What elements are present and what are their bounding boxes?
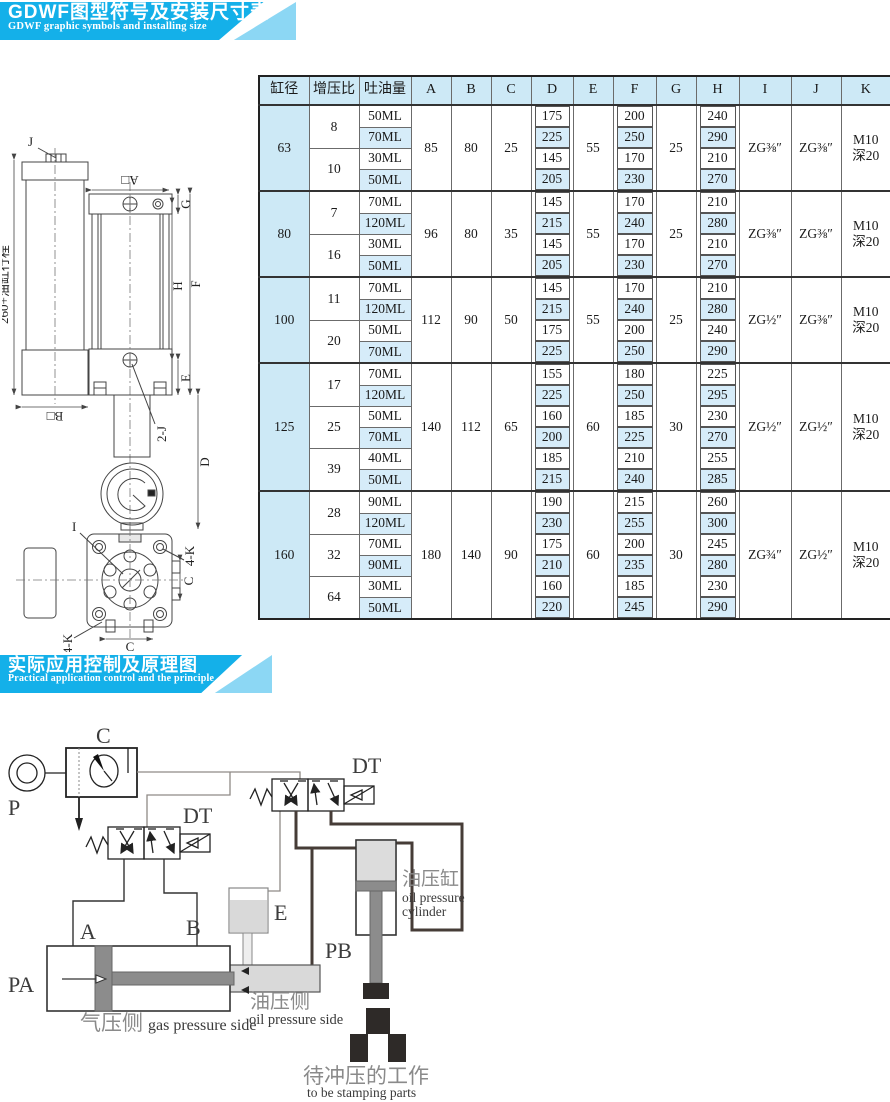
oil-volume-cell: 50ML (359, 255, 411, 277)
neck-and-gauge (101, 395, 163, 530)
dim-d-cell: 160 (531, 576, 573, 597)
c-label: C (96, 723, 111, 748)
dim-d-cell: 215 (531, 299, 573, 320)
ratio-cell: 10 (309, 148, 359, 191)
dim-a-cell: 96 (411, 191, 451, 277)
col-header: I (739, 76, 791, 105)
dt1-label: DT (183, 803, 213, 828)
oil-cylinder-cn-label: 油压缸 (402, 868, 459, 890)
catalog-page: GDWF图型符号及安装尺寸表 GDWF graphic symbols and … (0, 0, 890, 1102)
dt2-label: DT (352, 753, 382, 778)
dim-d-cell: 225 (531, 127, 573, 148)
oil-volume-cell: 120ML (359, 513, 411, 534)
dim-f-cell: 185 (613, 406, 656, 427)
four-k-top-label: 4-K (182, 545, 197, 566)
dim-h-cell: 210 (696, 234, 739, 255)
dim-f-cell: 240 (613, 299, 656, 320)
c-side-label: C (181, 577, 196, 586)
col-header: J (791, 76, 841, 105)
f-dim-label: F (188, 280, 203, 287)
oil-volume-cell: 70ML (359, 534, 411, 555)
installation-drawing: 260+油缸行程 J B□ A□ G (2, 62, 256, 652)
oil-volume-cell: 50ML (359, 406, 411, 427)
col-header: H (696, 76, 739, 105)
dim-d-cell: 215 (531, 213, 573, 234)
e-dim-label: E (178, 374, 193, 382)
dim-f-cell: 230 (613, 169, 656, 191)
dim-g-cell: 30 (656, 491, 696, 619)
dim-f-cell: 250 (613, 341, 656, 363)
dim-f-cell: 250 (613, 385, 656, 406)
dim-h-cell: 210 (696, 191, 739, 213)
air-line-tank (268, 811, 280, 891)
port-j-cell: ZG⅜″ (791, 277, 841, 363)
dim-h-cell: 270 (696, 169, 739, 191)
oil-volume-cell: 90ML (359, 555, 411, 576)
dim-d-cell: 175 (531, 105, 573, 127)
oil-volume-cell: 50ML (359, 597, 411, 619)
col-header: F (613, 76, 656, 105)
dim-f-cell: 240 (613, 469, 656, 491)
dim-a-cell: 85 (411, 105, 451, 191)
bore-cell: 100 (259, 277, 309, 363)
pb-label: PB (325, 938, 352, 963)
col-header: 缸径 (259, 76, 309, 105)
dim-h-cell: 230 (696, 576, 739, 597)
application-circuit-diagram: P C DT DT A B (0, 705, 480, 1102)
b-label: B (186, 915, 201, 940)
port-i-cell: ZG⅜″ (739, 105, 791, 191)
ratio-cell: 64 (309, 576, 359, 619)
oil-side-en-label: oil pressure side (249, 1012, 343, 1028)
port-i-cell: ZG½″ (739, 363, 791, 491)
col-header: G (656, 76, 696, 105)
dim-d-cell: 145 (531, 234, 573, 255)
table-row: 63 8 50ML 85 80 25 175 55 200 25 240 ZG⅜… (259, 105, 890, 127)
i-leader (80, 533, 123, 574)
oil-volume-cell: 120ML (359, 385, 411, 406)
two-j-leader (132, 364, 155, 424)
dim-d-cell: 175 (531, 534, 573, 555)
dim-d-cell: 155 (531, 363, 573, 385)
flange-view (24, 534, 180, 632)
dim-f-cell: 170 (613, 148, 656, 169)
dim-g-cell: 30 (656, 363, 696, 491)
port-i-cell: ZG½″ (739, 277, 791, 363)
col-header: A (411, 76, 451, 105)
oil-volume-cell: 70ML (359, 277, 411, 299)
oil-side-block (220, 965, 320, 994)
oil-volume-cell: 50ML (359, 169, 411, 191)
oil-cylinder-en1-label: oil pressure (402, 890, 465, 905)
i-label: I (72, 519, 76, 534)
dim-h-cell: 210 (696, 277, 739, 299)
oil-side-cn-label: 油压侧 (250, 990, 310, 1013)
dim-e-cell: 55 (573, 191, 613, 277)
dim-d-cell: 215 (531, 469, 573, 491)
dim-f-cell: 185 (613, 576, 656, 597)
oil-volume-cell: 30ML (359, 576, 411, 597)
dim-g-cell: 25 (656, 191, 696, 277)
dim-g-cell: 25 (656, 277, 696, 363)
workpiece (350, 1008, 406, 1062)
j-leader (38, 148, 56, 158)
dim-f-cell: 215 (613, 491, 656, 513)
drain-arrow-icon (75, 818, 83, 831)
dim-f-cell: 200 (613, 534, 656, 555)
dim-h-cell: 280 (696, 213, 739, 234)
col-header: K (841, 76, 890, 105)
e-label: E (274, 900, 287, 925)
dim-h-cell: 255 (696, 448, 739, 469)
p-label: P (8, 795, 20, 820)
col-header: D (531, 76, 573, 105)
ratio-cell: 25 (309, 406, 359, 448)
oil-volume-cell: 50ML (359, 469, 411, 491)
dim-h-cell: 290 (696, 341, 739, 363)
oil-volume-cell: 50ML (359, 105, 411, 127)
table-row: 160 28 90ML 180 140 90 190 60 215 30 260… (259, 491, 890, 513)
oil-volume-cell: 70ML (359, 127, 411, 148)
dim-f-cell: 240 (613, 213, 656, 234)
dim-d-cell: 200 (531, 427, 573, 448)
bore-cell: 125 (259, 363, 309, 491)
dim-d-cell: 225 (531, 341, 573, 363)
dim-d-cell: 145 (531, 191, 573, 213)
a-label: A (80, 919, 96, 944)
dim-f-cell: 200 (613, 105, 656, 127)
dim-d-cell: 205 (531, 169, 573, 191)
port-i-cell: ZG⅜″ (739, 191, 791, 277)
two-j-label: 2-J (154, 426, 169, 442)
dim-h-cell: 270 (696, 427, 739, 448)
dim-d-cell: 225 (531, 385, 573, 406)
port-j-cell: ZG⅜″ (791, 191, 841, 277)
dim-d-cell: 185 (531, 448, 573, 469)
booster-cylinder (47, 946, 234, 1011)
oil-volume-cell: 120ML (359, 213, 411, 234)
h-dim-label: H (170, 281, 185, 290)
j-label: J (28, 134, 33, 149)
dim-f-cell: 200 (613, 320, 656, 341)
directional-valve-2 (250, 779, 374, 811)
dim-d-cell: 175 (531, 320, 573, 341)
dim-d-cell: 205 (531, 255, 573, 277)
oil-volume-cell: 70ML (359, 427, 411, 448)
dim-h-cell: 245 (696, 534, 739, 555)
dim-c-cell: 35 (491, 191, 531, 277)
gas-side-en-label: gas pressure side (148, 1017, 256, 1034)
dim-a-cell: 112 (411, 277, 451, 363)
gas-side-cn-label: 气压侧 (80, 1012, 143, 1035)
oil-volume-cell: 90ML (359, 491, 411, 513)
ratio-cell: 11 (309, 277, 359, 320)
ratio-cell: 16 (309, 234, 359, 277)
b-dim-label: B□ (47, 409, 64, 424)
dim-b-cell: 112 (451, 363, 491, 491)
col-header: 吐油量 (359, 76, 411, 105)
port-j-cell: ZG½″ (791, 363, 841, 491)
dim-h-cell: 280 (696, 555, 739, 576)
g-dim-label: G (178, 199, 193, 208)
dim-d-cell: 220 (531, 597, 573, 619)
dim-a-cell: 140 (411, 363, 451, 491)
port-j-cell: ZG⅜″ (791, 105, 841, 191)
dim-c-cell: 50 (491, 277, 531, 363)
dim-d-cell: 145 (531, 148, 573, 169)
stroke-note-label: 260+油缸行程 (2, 245, 11, 324)
oil-volume-cell: 40ML (359, 448, 411, 469)
air-source-symbol (9, 755, 66, 791)
dim-h-cell: 290 (696, 597, 739, 619)
ratio-cell: 20 (309, 320, 359, 363)
dim-d-cell: 145 (531, 277, 573, 299)
banner1-subtitle: GDWF graphic symbols and installing size (8, 22, 296, 33)
banner2-subtitle: Practical application control and the pr… (8, 674, 272, 684)
ratio-cell: 32 (309, 534, 359, 576)
table-row: 125 17 70ML 140 112 65 155 60 180 30 225… (259, 363, 890, 385)
oil-volume-cell: 70ML (359, 191, 411, 213)
cylinder-body (89, 194, 172, 395)
dim-f-cell: 170 (613, 191, 656, 213)
ratio-cell: 7 (309, 191, 359, 234)
thread-k-cell: M10深20 (841, 491, 890, 619)
thread-k-cell: M10深20 (841, 191, 890, 277)
dim-h-cell: 240 (696, 105, 739, 127)
dimension-table: 缸径 增压比 吐油量 A B C D E F G H I J K 63 8 50… (258, 75, 890, 620)
dim-h-cell: 295 (696, 385, 739, 406)
oil-tank-e (229, 888, 268, 965)
dim-h-cell: 240 (696, 320, 739, 341)
banner2-title: 实际应用控制及原理图 (8, 656, 272, 674)
air-line-main (137, 772, 300, 779)
dim-e-cell: 60 (573, 363, 613, 491)
dim-b-cell: 80 (451, 105, 491, 191)
dim-g-cell: 25 (656, 105, 696, 191)
d-dim-label: D (197, 457, 212, 466)
oil-volume-cell: 120ML (359, 299, 411, 320)
dim-b-cell: 140 (451, 491, 491, 619)
dim-h-cell: 280 (696, 299, 739, 320)
port-i-cell: ZG¾″ (739, 491, 791, 619)
regulator-unit (66, 748, 137, 831)
dim-h-cell: 300 (696, 513, 739, 534)
dim-e-cell: 60 (573, 491, 613, 619)
ratio-cell: 8 (309, 105, 359, 148)
dim-c-cell: 25 (491, 105, 531, 191)
dim-h-cell: 290 (696, 127, 739, 148)
four-k-bottom-label: 4-K (60, 633, 75, 652)
port-j-cell: ZG½″ (791, 491, 841, 619)
oil-pressure-cylinder (356, 840, 396, 999)
table-row: 100 11 70ML 112 90 50 145 55 170 25 210 … (259, 277, 890, 299)
oil-cylinder-en2-label: cylinder (402, 904, 447, 919)
dim-f-cell: 180 (613, 363, 656, 385)
ratio-cell: 28 (309, 491, 359, 534)
dim-h-cell: 225 (696, 363, 739, 385)
dim-d-cell: 210 (531, 555, 573, 576)
banner-install-size: GDWF图型符号及安装尺寸表 GDWF graphic symbols and … (0, 2, 296, 40)
dim-f-cell: 250 (613, 127, 656, 148)
bore-cell: 160 (259, 491, 309, 619)
ratio-cell: 17 (309, 363, 359, 406)
dim-h-cell: 285 (696, 469, 739, 491)
thread-k-cell: M10深20 (841, 363, 890, 491)
oil-volume-cell: 30ML (359, 234, 411, 255)
bore-cell: 63 (259, 105, 309, 191)
dim-d-cell: 230 (531, 513, 573, 534)
dim-f-cell: 170 (613, 234, 656, 255)
table-row: 80 7 70ML 96 80 35 145 55 170 25 210 ZG⅜… (259, 191, 890, 213)
dim-f-cell: 230 (613, 255, 656, 277)
dim-c-cell: 90 (491, 491, 531, 619)
dim-h-cell: 270 (696, 255, 739, 277)
thread-k-cell: M10深20 (841, 277, 890, 363)
dim-e-cell: 55 (573, 105, 613, 191)
col-header: B (451, 76, 491, 105)
dim-a-cell: 180 (411, 491, 451, 619)
dim-f-cell: 210 (613, 448, 656, 469)
dim-f-cell: 225 (613, 427, 656, 448)
bore-cell: 80 (259, 191, 309, 277)
a-dim-label: A□ (121, 173, 138, 188)
c-bottom-label: C (126, 639, 135, 652)
ratio-cell: 39 (309, 448, 359, 491)
dim-f-cell: 235 (613, 555, 656, 576)
dim-f-cell: 245 (613, 597, 656, 619)
col-header: C (491, 76, 531, 105)
banner-application: 实际应用控制及原理图 Practical application control… (0, 655, 272, 693)
col-header: 增压比 (309, 76, 359, 105)
col-header: E (573, 76, 613, 105)
banner1-title: GDWF图型符号及安装尺寸表 (8, 3, 296, 22)
dim-h-cell: 210 (696, 148, 739, 169)
workpiece-en-label: to be stamping parts (307, 1085, 416, 1100)
pa-label: PA (8, 972, 34, 997)
dim-b-cell: 90 (451, 277, 491, 363)
dim-d-cell: 190 (531, 491, 573, 513)
dim-h-cell: 230 (696, 406, 739, 427)
oil-volume-cell: 30ML (359, 148, 411, 169)
directional-valve-1 (86, 827, 210, 859)
oil-volume-cell: 70ML (359, 363, 411, 385)
oil-line-left (296, 811, 356, 848)
header-row: 缸径 增压比 吐油量 A B C D E F G H I J K (259, 76, 890, 105)
dim-b-cell: 80 (451, 191, 491, 277)
oil-volume-cell: 70ML (359, 341, 411, 363)
dim-e-cell: 55 (573, 277, 613, 363)
oil-volume-cell: 50ML (359, 320, 411, 341)
dimension-table-wrapper: 缸径 增压比 吐油量 A B C D E F G H I J K 63 8 50… (258, 75, 890, 620)
dim-c-cell: 65 (491, 363, 531, 491)
dim-d-cell: 160 (531, 406, 573, 427)
dim-h-cell: 260 (696, 491, 739, 513)
thread-k-cell: M10深20 (841, 105, 890, 191)
dim-f-cell: 170 (613, 277, 656, 299)
dim-f-cell: 255 (613, 513, 656, 534)
